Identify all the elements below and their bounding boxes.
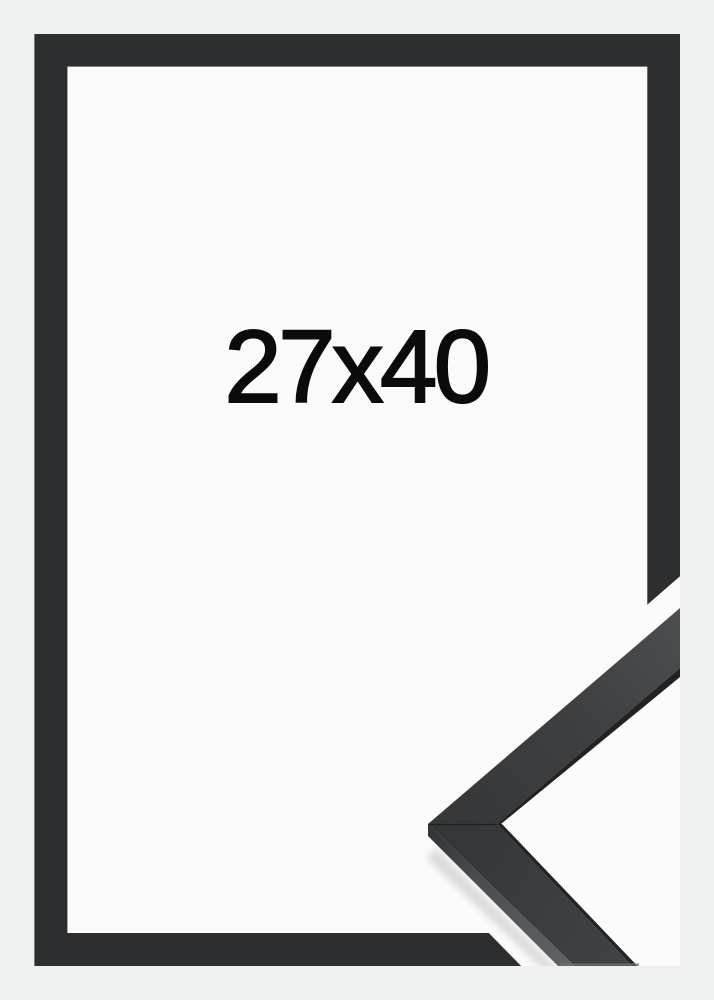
- svg-text:27x40: 27x40: [224, 309, 487, 424]
